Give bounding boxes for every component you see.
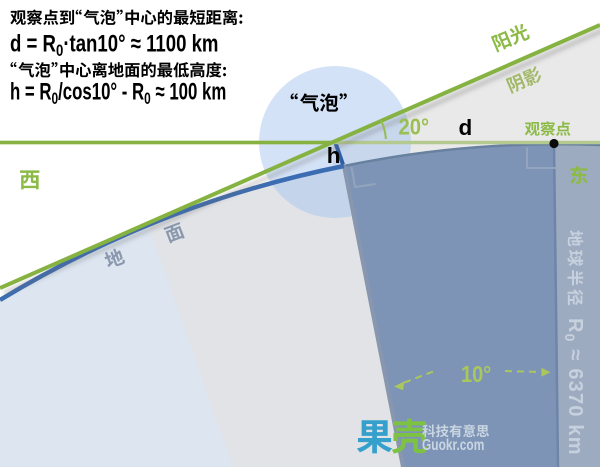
- svg-text:d = R0·tan10° ≈ 1100 km: d = R0·tan10° ≈ 1100 km: [10, 30, 218, 60]
- svg-text:h = R0/cos10° - R0 ≈ 100 km: h = R0/cos10° - R0 ≈ 100 km: [10, 79, 226, 109]
- svg-text:10°: 10°: [461, 361, 491, 388]
- svg-text:h: h: [327, 143, 341, 168]
- svg-text:d: d: [459, 115, 473, 140]
- svg-text:Guokr.com: Guokr.com: [422, 435, 484, 453]
- svg-text:20°: 20°: [399, 113, 430, 140]
